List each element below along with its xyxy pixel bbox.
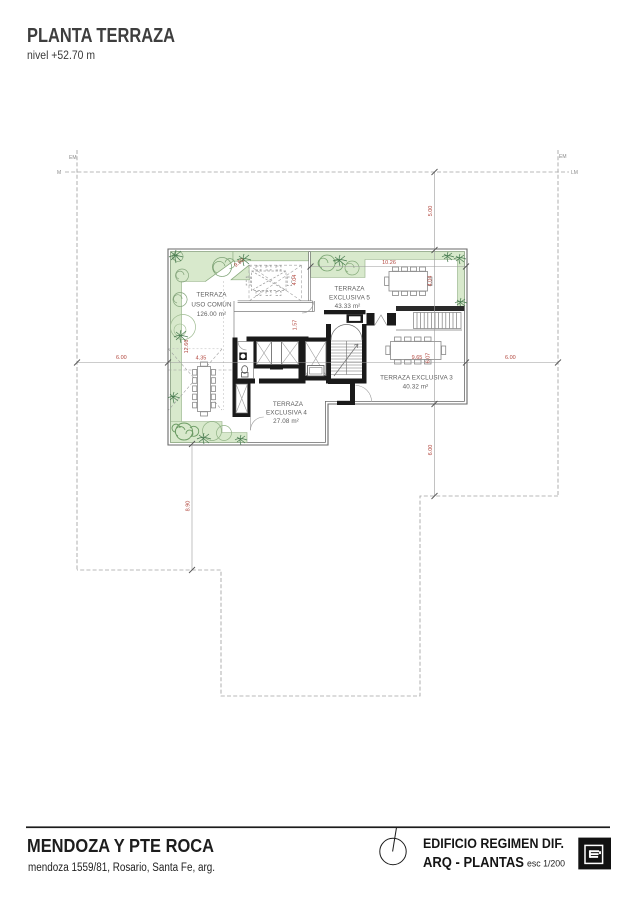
svg-text:esc 1/200: esc 1/200 xyxy=(527,859,565,870)
svg-text:mendoza 1559/81, Rosario, Sant: mendoza 1559/81, Rosario, Santa Fe, arg. xyxy=(28,862,215,874)
svg-text:EDIFICIO REGIMEN DIF.: EDIFICIO REGIMEN DIF. xyxy=(423,836,564,851)
svg-text:MENDOZA Y PTE ROCA: MENDOZA Y PTE ROCA xyxy=(27,836,214,856)
svg-text:ARQ - PLANTAS: ARQ - PLANTAS xyxy=(423,855,524,871)
